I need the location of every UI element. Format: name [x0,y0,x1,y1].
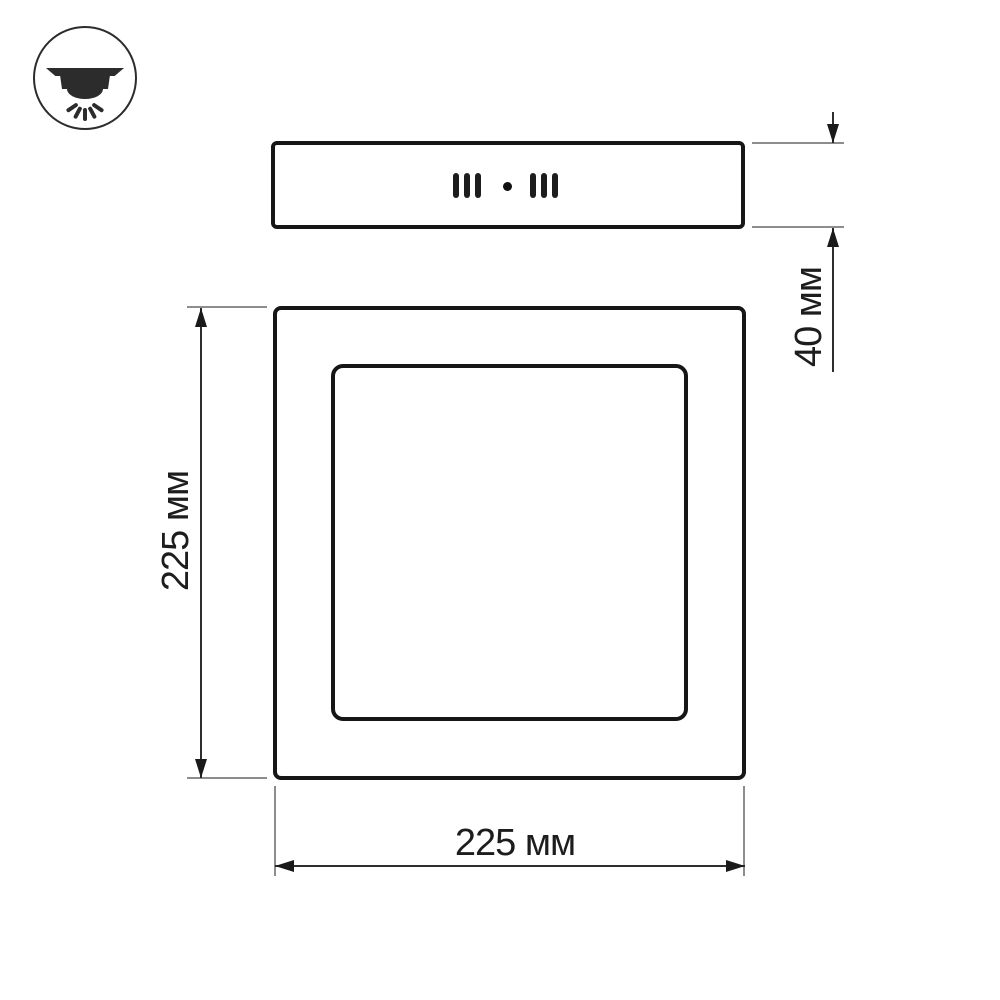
vent-slot-group-left [453,173,481,198]
dim-depth-label: 40 мм [786,232,832,402]
dimension-line [200,308,202,778]
arrow-down-icon [827,124,839,143]
vent-slot-icon [464,173,470,198]
arrow-up-icon [195,308,207,327]
arrow-right-icon [726,860,745,872]
vent-slot-icon [541,173,547,198]
arrow-left-icon [275,860,294,872]
vent-slot-icon [552,173,558,198]
dim-height-label: 225 мм [153,446,199,616]
vent-slot-icon [530,173,536,198]
arrow-down-icon [195,759,207,778]
center-hole-icon [503,182,512,191]
vent-slot-icon [475,173,481,198]
dimension-line [832,228,834,372]
dim-width-label: 225 мм [430,820,600,866]
fixture-flange [46,68,124,76]
fixture-body [60,75,110,89]
light-ray-icon [83,108,87,121]
front-view-inner-panel [331,364,688,721]
vent-slot-group-right [530,173,558,198]
vent-slot-icon [453,173,459,198]
